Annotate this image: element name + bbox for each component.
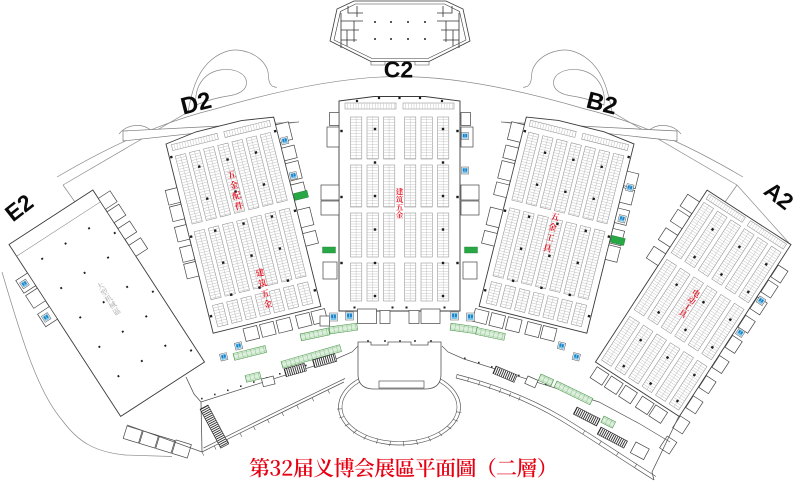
svg-text:C2: C2 — [384, 57, 413, 83]
